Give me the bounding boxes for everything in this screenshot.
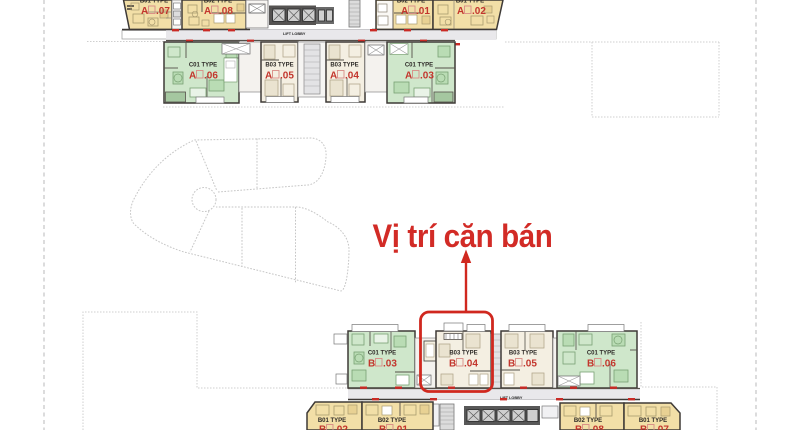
svg-text:B: B — [368, 359, 375, 370]
svg-text:.01: .01 — [394, 425, 408, 430]
svg-text:A: A — [141, 6, 148, 17]
svg-text:A: A — [189, 71, 196, 82]
svg-text:B01 TYPE: B01 TYPE — [318, 418, 346, 424]
svg-text:A: A — [330, 71, 337, 82]
svg-text:A: A — [457, 6, 464, 17]
svg-text:C01 TYPE: C01 TYPE — [587, 351, 615, 357]
svg-text:B01 TYPE: B01 TYPE — [639, 418, 667, 424]
svg-text:A: A — [204, 6, 211, 17]
svg-text:.02: .02 — [472, 6, 486, 17]
svg-text:B03 TYPE: B03 TYPE — [330, 63, 358, 69]
svg-text:C01 TYPE: C01 TYPE — [405, 63, 433, 69]
svg-text:B02 TYPE: B02 TYPE — [574, 418, 602, 424]
svg-text:.04: .04 — [464, 359, 478, 370]
svg-text:B: B — [640, 425, 647, 430]
svg-text:.05: .05 — [523, 359, 537, 370]
svg-text:.06: .06 — [602, 359, 616, 370]
svg-text:.01: .01 — [416, 6, 430, 17]
svg-text:C01 TYPE: C01 TYPE — [368, 351, 396, 357]
svg-text:A: A — [401, 6, 408, 17]
svg-text:.06: .06 — [204, 71, 218, 82]
svg-text:B: B — [319, 425, 326, 430]
svg-text:LIFT LOBBY: LIFT LOBBY — [283, 32, 306, 36]
svg-text:B: B — [379, 425, 386, 430]
svg-text:B: B — [508, 359, 515, 370]
svg-text:B02 TYPE: B02 TYPE — [204, 0, 232, 5]
svg-text:B01 TYPE: B01 TYPE — [140, 0, 168, 5]
svg-text:B: B — [449, 359, 456, 370]
svg-text:.05: .05 — [280, 71, 294, 82]
svg-text:B: B — [587, 359, 594, 370]
svg-text:B03 TYPE: B03 TYPE — [265, 63, 293, 69]
svg-text:A: A — [405, 71, 412, 82]
svg-text:B03 TYPE: B03 TYPE — [449, 351, 477, 357]
svg-text:B: B — [575, 425, 582, 430]
svg-text:B02 TYPE: B02 TYPE — [397, 0, 425, 5]
svg-text:.07: .07 — [655, 425, 669, 430]
svg-text:.03: .03 — [420, 71, 434, 82]
svg-text:.07: .07 — [156, 6, 170, 17]
svg-text:.03: .03 — [383, 359, 397, 370]
svg-text:B02 TYPE: B02 TYPE — [378, 418, 406, 424]
svg-text:.08: .08 — [590, 425, 604, 430]
svg-text:B03 TYPE: B03 TYPE — [509, 351, 537, 357]
svg-text:.02: .02 — [334, 425, 348, 430]
svg-text:.04: .04 — [345, 71, 359, 82]
svg-text:B01 TYPE: B01 TYPE — [456, 0, 484, 5]
svg-text:Vị trí căn bán: Vị trí căn bán — [373, 218, 553, 255]
svg-text:C01 TYPE: C01 TYPE — [189, 63, 217, 69]
svg-text:A: A — [265, 71, 272, 82]
svg-text:.08: .08 — [219, 6, 233, 17]
